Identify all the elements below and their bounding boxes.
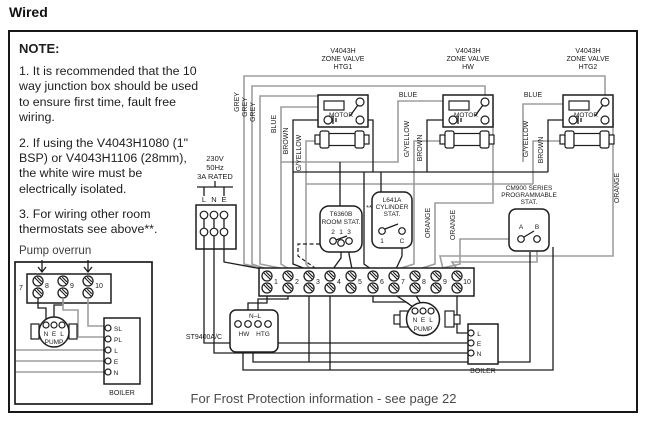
motor-terminal — [481, 98, 489, 106]
valve-captions: V4043H ZONE VALVE HTG1 V4043H ZONE VALVE… — [322, 48, 610, 71]
motor-terminal — [601, 116, 609, 124]
supply-terminal — [200, 228, 208, 236]
prog-stat-line3: STAT. — [521, 199, 538, 206]
programmer-htg: HTG — [256, 331, 270, 338]
gyellow-label: G/YELLOW — [296, 134, 303, 171]
inset-pump-terminal — [59, 322, 65, 328]
prog-stat-terminal — [534, 236, 541, 243]
blue-label: BLUE — [399, 92, 418, 99]
programmer-terminal — [245, 321, 252, 328]
valve-body — [440, 131, 494, 148]
wiring-page: Wired NOTE: 1. It is recommended that th… — [0, 0, 647, 422]
jb-terminal-8: 8 — [422, 279, 426, 286]
room-stat-terminal — [346, 238, 353, 245]
room-stat-name: ROOM STAT. — [322, 219, 361, 226]
cyl-stat-tc: C — [400, 238, 405, 245]
inset-boiler-terminal — [105, 358, 111, 364]
motor-terminal — [356, 98, 364, 106]
supply-rating: 3A RATED — [197, 172, 233, 181]
cylinder-stat: L641A CYLINDER STAT. 1 C — [372, 192, 412, 248]
boiler-terminal — [468, 330, 474, 336]
prog-stat-terminal — [518, 236, 525, 243]
motor-coil — [449, 101, 469, 110]
pump-terminal — [420, 308, 426, 314]
valve2-model: V4043H — [455, 48, 480, 55]
wiring-diagram-svg: MOTOR MOTOR — [0, 0, 647, 422]
supply-l: L — [202, 195, 206, 204]
room-stat-terminal — [330, 238, 337, 245]
pump-l: L — [429, 317, 433, 324]
jb-terminal-6: 6 — [380, 279, 384, 286]
inset-pump-label: PUMP — [45, 339, 64, 346]
motor-terminal — [481, 116, 489, 124]
orange-label: ORANGE — [425, 208, 432, 239]
room-stat-t2: 2 — [331, 229, 335, 236]
inset-pump-n: N — [44, 331, 49, 338]
cyl-stat-name1: CYLINDER — [376, 204, 409, 211]
zone-valve-htg2: MOTOR — [560, 95, 614, 148]
grey-label: GREY — [242, 97, 249, 117]
jb-terminal-9: 9 — [443, 279, 447, 286]
wire-blue-drop — [281, 162, 289, 269]
inset-boiler-l: L — [114, 348, 118, 355]
supply-volts: 230V — [206, 154, 224, 163]
motor-coil — [324, 101, 344, 110]
brown-label: BROWN — [417, 135, 424, 162]
pump-terminal — [428, 308, 434, 314]
valve-body — [560, 131, 614, 148]
cyl-stat-name2: STAT. — [384, 211, 401, 218]
inset-boiler-pl: PL — [114, 337, 122, 344]
brown-label: BROWN — [283, 128, 290, 155]
supply-terminal — [220, 211, 228, 219]
wire-jb10-boiler — [457, 294, 468, 333]
pump-label: PUMP — [414, 326, 433, 333]
cyl-stat-terminal — [399, 228, 406, 235]
programmable-stat: CM900 SERIES PROGRAMMABLE STAT. A B — [501, 185, 557, 251]
valve3-model: V4043H — [575, 48, 600, 55]
pump-overrun-inset: 7 8 9 10 N E L PUMP SL PL — [15, 260, 152, 404]
orange-label: ORANGE — [450, 210, 457, 241]
room-stat-t3: 3 — [347, 229, 351, 236]
blue-label: BLUE — [524, 92, 543, 99]
room-stat-terminal — [338, 240, 345, 247]
motor-label: MOTOR — [454, 112, 478, 119]
programmer-hw: HW — [239, 331, 251, 338]
grey-label: GREY — [234, 92, 241, 112]
inset-pump-flange — [69, 324, 77, 339]
jb-terminal-7: 7 — [401, 279, 405, 286]
wire-orange-stat-a — [438, 239, 512, 269]
programmer-top: N–L — [249, 313, 261, 320]
mains-supply: 230V 50Hz 3A RATED L N E — [196, 154, 236, 249]
supply-freq: 50Hz — [206, 163, 224, 172]
note-marker: ** — [366, 203, 372, 212]
valve2-type: ZONE VALVE — [447, 56, 490, 63]
boiler-terminal — [468, 350, 474, 356]
cyl-stat-t1: 1 — [380, 238, 384, 245]
cyl-stat-model: L641A — [383, 197, 402, 204]
motor-label: MOTOR — [329, 112, 353, 119]
valve3-zone: HTG2 — [579, 64, 598, 71]
jb-terminal-3: 3 — [316, 279, 320, 286]
jb-terminal-1: 1 — [274, 279, 278, 286]
inset-boiler-sl: SL — [114, 326, 122, 333]
boiler-label: BOILER — [470, 368, 496, 375]
boiler-e: E — [477, 341, 482, 348]
inset-pump-flange — [31, 324, 39, 339]
inset-pump-l: L — [60, 331, 64, 338]
wire-brown-drop — [364, 172, 371, 269]
supply-bracket — [197, 181, 233, 196]
motor-label: MOTOR — [574, 112, 598, 119]
inset-boiler-e: E — [114, 359, 119, 366]
supply-terminal — [210, 211, 218, 219]
grey-label: GREY — [250, 102, 257, 122]
prog-stat-tb: B — [535, 224, 539, 231]
prog-stat-line1: CM900 SERIES — [506, 185, 553, 192]
valve-body — [315, 131, 369, 148]
inset-boiler-n: N — [114, 370, 119, 377]
motor-terminal — [356, 116, 364, 124]
motor-coil — [569, 101, 589, 110]
inset-boiler-label: BOILER — [109, 390, 135, 397]
orange-label: ORANGE — [614, 173, 621, 204]
inset-t9: 9 — [70, 283, 74, 290]
valve1-zone: HTG1 — [334, 64, 353, 71]
pump-flange — [445, 311, 454, 327]
boiler: L E N BOILER — [468, 324, 498, 375]
pump-terminal — [412, 308, 418, 314]
junction-box: 1 2 3 4 5 6 7 8 9 10 — [259, 268, 474, 296]
room-stat-model: T6360B — [330, 211, 353, 218]
gyellow-label: G/YELLOW — [404, 120, 411, 157]
jb-terminal-4: 4 — [337, 279, 341, 286]
wire-gyellow-htg1 — [306, 141, 322, 269]
inset-wire — [16, 350, 105, 372]
pump-e: E — [421, 317, 426, 324]
prog-stat-ta: A — [519, 224, 524, 231]
inset-pump-e: E — [52, 331, 57, 338]
valve3-type: ZONE VALVE — [567, 56, 610, 63]
blue-label: BLUE — [271, 115, 278, 134]
prog-stat-box — [509, 209, 549, 251]
supply-terminal — [200, 211, 208, 219]
inset-t10: 10 — [95, 283, 103, 290]
supply-terminal — [210, 228, 218, 236]
motor-terminal — [601, 98, 609, 106]
pump-n: N — [413, 317, 418, 324]
jb-terminal-10: 10 — [463, 279, 471, 286]
boiler-terminal — [468, 340, 474, 346]
inset-t8: 8 — [45, 283, 49, 290]
valve2-zone: HW — [462, 64, 474, 71]
jb-terminal-5: 5 — [358, 279, 362, 286]
jb-terminal-2: 2 — [295, 279, 299, 286]
inset-boiler-terminal — [105, 336, 111, 342]
inset-t7: 7 — [19, 285, 23, 292]
inset-pump-terminal — [51, 322, 57, 328]
supply-terminal — [220, 228, 228, 236]
zone-valve-hw: MOTOR — [440, 95, 494, 148]
prog-stat-line2: PROGRAMMABLE — [501, 192, 557, 199]
inset-boiler-terminal — [105, 325, 111, 331]
boiler-n: N — [477, 351, 482, 358]
room-stat-t1: 1 — [339, 229, 343, 236]
cyl-stat-terminal — [379, 228, 386, 235]
valve1-type: ZONE VALVE — [322, 56, 365, 63]
inset-boiler-terminal — [105, 347, 111, 353]
programmer-terminal — [235, 321, 242, 328]
zone-valve-htg1: MOTOR — [315, 95, 369, 148]
supply-e: E — [221, 195, 226, 204]
programmer: N–L HW HTG ST9400A/C — [186, 310, 278, 352]
programmer-label: ST9400A/C — [186, 334, 222, 341]
programmer-terminal — [255, 321, 262, 328]
gyellow-label: G/YELLOW — [523, 120, 530, 157]
inset-pump-terminal — [43, 322, 49, 328]
pump: N E L PUMP — [394, 303, 460, 336]
brown-label: BROWN — [538, 137, 545, 164]
supply-n: N — [211, 195, 216, 204]
valve1-model: V4043H — [330, 48, 355, 55]
programmer-terminal — [265, 321, 272, 328]
boiler-l: L — [477, 331, 481, 338]
inset-boiler-terminal — [105, 369, 111, 375]
